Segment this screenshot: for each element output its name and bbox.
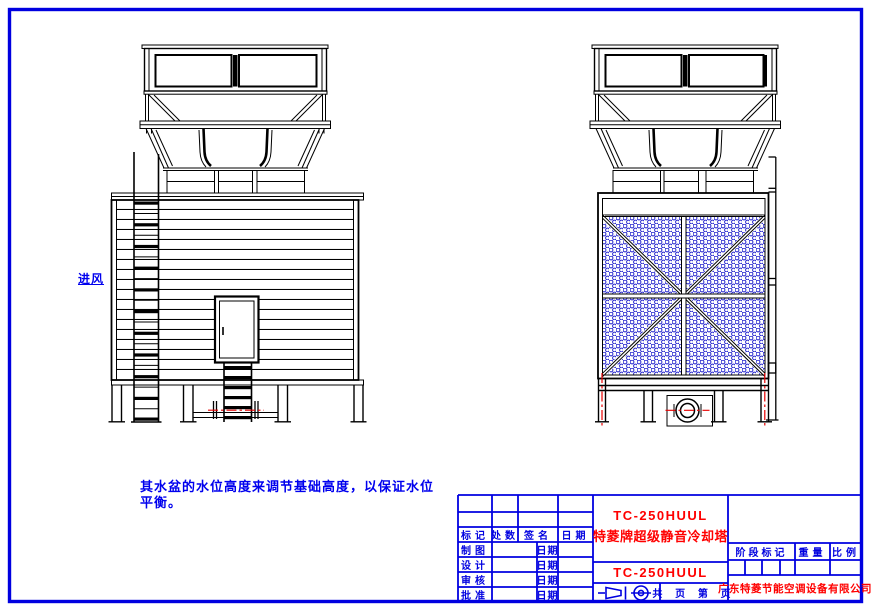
row-checked-label: 审核 (458, 572, 492, 587)
row-drafted-label: 制图 (458, 542, 492, 557)
row-designed-date: 日期 (537, 557, 558, 572)
sheet-artwork (0, 0, 871, 611)
row-drafted-date: 日期 (537, 542, 558, 557)
cowl-opening-right (689, 55, 764, 87)
projection-target-icon (631, 586, 651, 600)
row-designed-label: 设计 (458, 557, 492, 572)
air-inlet-label: 进风 (78, 270, 104, 287)
product-name: 特菱牌超级静音冷却塔 (594, 527, 727, 544)
access-door (215, 297, 259, 363)
revision-header-mark: 标记 (458, 527, 492, 542)
drawing-sheet: 进风 其水盆的水位高度来调节基础高度，以保证水位 平衡。 标记 处数 签名 日期… (0, 0, 871, 611)
side-view-drawing (109, 45, 367, 422)
company-name: 广东特菱节能空调设备有限公司 (728, 576, 862, 601)
water-level-note: 其水盆的水位高度来调节基础高度，以保证水位 平衡。 (140, 479, 434, 511)
note-line-2: 平衡。 (140, 495, 434, 511)
revision-header-date: 日期 (558, 527, 593, 542)
cowl-opening-left (606, 55, 682, 87)
row-approved-date: 日期 (537, 587, 558, 601)
spec-header-weight: 重量 (795, 543, 830, 560)
first-angle-projection-icon (598, 587, 626, 600)
spec-header-scale: 比例 (830, 543, 862, 560)
cowl-opening-left (156, 55, 232, 87)
model-number: TC-250HUUL (594, 507, 727, 523)
cowl-opening-right (239, 55, 317, 87)
drawing-number: TC-250HUUL (594, 563, 727, 582)
revision-header-count: 处数 (492, 527, 518, 542)
mesh-panel (603, 215, 766, 377)
spec-header-stage: 阶段标记 (728, 543, 795, 560)
row-checked-date: 日期 (537, 572, 558, 587)
note-line-1: 其水盆的水位高度来调节基础高度，以保证水位 (140, 479, 434, 495)
revision-header-signature: 签名 (518, 527, 558, 542)
row-approved-label: 批准 (458, 587, 492, 601)
front-view-drawing (590, 45, 781, 427)
